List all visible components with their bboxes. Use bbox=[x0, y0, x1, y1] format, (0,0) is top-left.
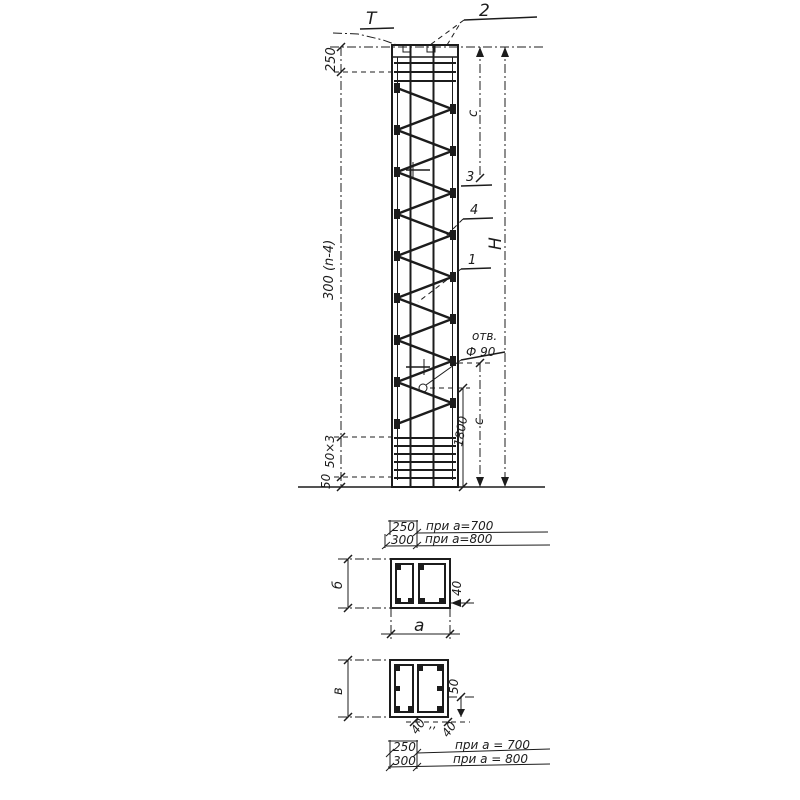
dim-50-label: 50 bbox=[319, 473, 333, 489]
callout-3-label: 3 bbox=[466, 170, 474, 185]
lower-table-row1-value: 250 bbox=[393, 740, 416, 754]
callout-4-label: 4 bbox=[470, 203, 478, 218]
upper-cross-section: б 40 a bbox=[331, 555, 474, 639]
lower-section-ditto-label: ,, bbox=[429, 717, 437, 731]
dim-300n4-label: 300 (n-4) bbox=[322, 240, 337, 300]
upper-table-row2-value: 300 bbox=[391, 533, 414, 547]
upper-condition-table: 250 при a=700 300 при a=800 bbox=[382, 519, 550, 549]
upper-table-row1-cond: при a=700 bbox=[426, 519, 494, 533]
lower-table-row2-value: 300 bbox=[393, 754, 416, 768]
upper-section-40-label: 40 bbox=[450, 580, 464, 596]
section-mark-underline bbox=[360, 28, 394, 29]
hole-note-line1: отв. bbox=[472, 329, 497, 343]
callout-3-underline bbox=[461, 185, 492, 186]
height-arrow-top bbox=[501, 47, 509, 57]
dim-height-label: Н bbox=[486, 237, 506, 250]
bottom-ties bbox=[394, 438, 456, 478]
upper-section-side-label: б bbox=[331, 581, 346, 589]
column-elevation bbox=[392, 45, 458, 487]
lower-section-40-left-label: 40 bbox=[408, 716, 428, 737]
drawing-canvas: 250 300 (n-4) 50×3 50 c c 1800 Н Т 2 bbox=[0, 0, 800, 800]
top-ties bbox=[394, 63, 456, 81]
callout-1-label: 1 bbox=[468, 253, 476, 268]
engineering-drawing-sheet: { "colors": { "ink": "#1c1c1c", "paper":… bbox=[0, 0, 800, 800]
lower-cross-section: в 50 40 ,, 40 bbox=[331, 656, 475, 740]
callout-1-underline bbox=[461, 268, 491, 269]
c-upper-tick-bottom bbox=[476, 174, 484, 182]
dim-1800-label: 1800 bbox=[451, 415, 470, 448]
callout-4-underline bbox=[463, 218, 493, 219]
lower-condition-table: 250 при a = 700 300 при a = 800 bbox=[386, 738, 550, 771]
elevation-callouts: Т 2 3 4 1 отв. Ф 90 bbox=[333, 1, 537, 385]
callout-2-leader-a bbox=[430, 20, 464, 45]
dim-250-label: 250 bbox=[324, 47, 339, 72]
lattice-weld-pads bbox=[394, 83, 456, 429]
section-mark-leader bbox=[333, 33, 397, 45]
callout-2-leader-b bbox=[447, 22, 461, 45]
height-arrow-bottom bbox=[501, 477, 509, 487]
callout-2-label: 2 bbox=[479, 1, 490, 21]
c-lower-arrow-bottom bbox=[476, 477, 484, 487]
section-mark-label: Т bbox=[366, 9, 378, 29]
c-upper-arrow-top bbox=[476, 47, 484, 57]
dim-50x3-label: 50×3 bbox=[323, 435, 337, 468]
dim-c-lower-label: c bbox=[472, 418, 487, 425]
lower-section-side-label: в bbox=[331, 687, 346, 695]
upper-table-row1-value: 250 bbox=[392, 520, 415, 534]
lower-section-50-label: 50 bbox=[447, 678, 461, 694]
lower-table-row1-cond: при a = 700 bbox=[455, 738, 530, 752]
callout-2-underline bbox=[464, 17, 537, 20]
upper-table-row2-cond: при a=800 bbox=[425, 532, 493, 546]
upper-section-a-label: a bbox=[414, 616, 424, 636]
lower-table-row2-cond: при a = 800 bbox=[453, 752, 528, 766]
dim-c-upper-label: c bbox=[466, 110, 481, 117]
elevation-dimensions: 250 300 (n-4) 50×3 50 c c 1800 Н bbox=[298, 43, 545, 491]
